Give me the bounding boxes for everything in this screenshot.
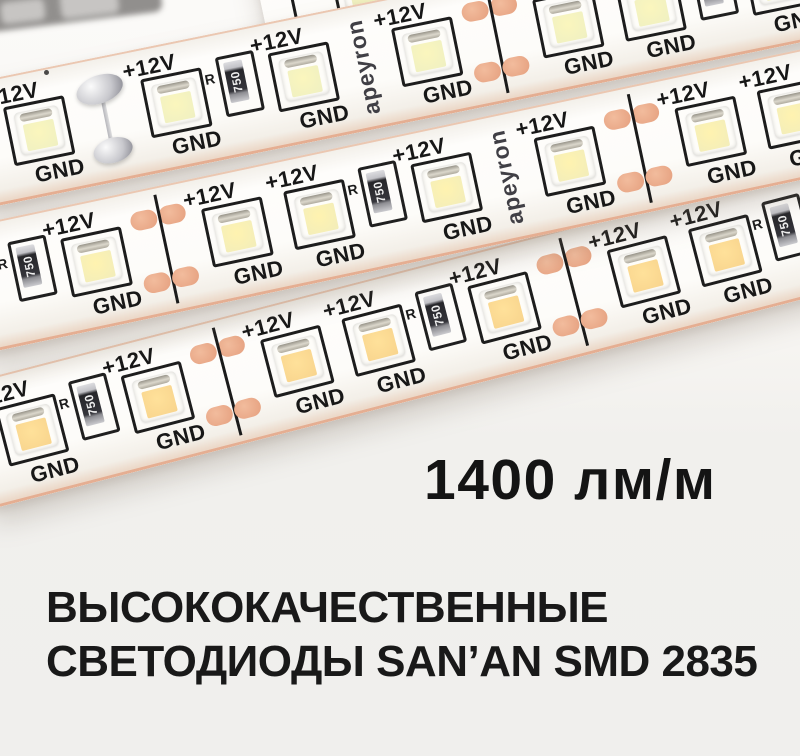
led-chip [624, 0, 677, 31]
copper-pad [616, 170, 646, 194]
solder-joint [72, 68, 127, 110]
resistor-component: 750 [223, 59, 250, 103]
led-frame [140, 67, 213, 138]
led-chip [131, 371, 185, 424]
led-chip [420, 161, 473, 212]
subheading-line-1: ВЫСОКОКАЧЕСТВЕННЫЕ [46, 581, 757, 635]
resistor-value-label: 750 [428, 303, 447, 327]
led-die [553, 149, 589, 182]
resistor-value-label: 750 [227, 69, 245, 93]
product-subheading: ВЫСОКОКАЧЕСТВЕННЫЕ СВЕТОДИОДЫ SAN’AN SMD… [46, 581, 757, 689]
led-die [694, 119, 730, 152]
led-frame [201, 196, 274, 268]
resistor-component: 750 [423, 293, 452, 337]
led-die [159, 90, 195, 123]
copper-pad [129, 208, 159, 232]
solder-joint [90, 133, 135, 168]
resistor-component: 750 [769, 203, 798, 247]
blurred-component [0, 0, 46, 25]
resistor-prefix-label: R [346, 181, 359, 199]
dust-speck [44, 70, 49, 75]
led-frame [283, 178, 356, 250]
led-chip [698, 224, 752, 277]
copper-pad [603, 107, 633, 131]
led-chip [211, 206, 264, 257]
resistor-component: 750 [76, 382, 105, 426]
subheading-line-2: СВЕТОДИОДЫ SAN’AN SMD 2835 [46, 635, 757, 689]
led-frame [410, 151, 483, 223]
led-die [487, 295, 524, 329]
resistor-frame: 750 [689, 0, 739, 21]
led-chip [150, 77, 203, 128]
led-die [430, 175, 466, 208]
led-die [634, 0, 670, 27]
led-chip [477, 281, 531, 334]
led-frame [391, 16, 464, 87]
led-chip [542, 0, 595, 48]
led-die [141, 384, 178, 418]
led-die [410, 39, 446, 72]
led-chip [543, 135, 596, 186]
led-die [761, 0, 797, 1]
led-die [287, 65, 323, 98]
led-chip [351, 313, 405, 366]
copper-pad [551, 313, 582, 338]
lumen-headline: 1400 лм/м [424, 447, 717, 513]
led-die [361, 327, 398, 361]
gnd-label: GND [564, 186, 618, 218]
led-die [79, 249, 115, 282]
copper-pad [535, 251, 566, 276]
gnd-label: GND [441, 212, 495, 244]
led-chip [293, 188, 346, 239]
led-die [627, 259, 664, 293]
product-image: +12VGNDR750+12VGND+12VGND+12VGND+12VGND+… [0, 0, 800, 756]
resistor-prefix-label: R [203, 70, 216, 88]
led-chip [752, 0, 800, 5]
led-frame [756, 78, 800, 150]
led-chip [13, 105, 66, 156]
gnd-label: GND [232, 257, 286, 289]
led-die [776, 101, 800, 134]
resistor-prefix-label: R [0, 255, 9, 273]
led-frame [60, 226, 133, 298]
gnd-label: GND [91, 287, 145, 319]
resistor-value-label: 750 [81, 392, 100, 416]
copper-pad [204, 403, 235, 428]
led-frame [3, 95, 76, 166]
blurred-strip-fragment [0, 0, 163, 33]
blurred-component [59, 0, 120, 20]
led-die [15, 417, 52, 451]
copper-pad [188, 341, 219, 366]
copper-pad [460, 0, 490, 23]
copper-pad [142, 271, 172, 295]
led-chip [5, 403, 59, 456]
led-chip [684, 105, 737, 156]
resistor-value-label: 750 [20, 254, 38, 278]
led-die [280, 348, 317, 382]
led-chip [70, 236, 123, 287]
led-die [220, 220, 256, 253]
resistor-value-label: 750 [774, 213, 793, 237]
led-frame [674, 95, 747, 167]
resistor-frame: 750 [761, 193, 800, 262]
led-chip [617, 245, 671, 298]
led-die [551, 11, 587, 44]
resistor-component: 750 [366, 170, 393, 214]
led-chip [401, 26, 454, 77]
led-frame [267, 41, 340, 112]
led-chip [766, 88, 800, 139]
gnd-label: GND [705, 156, 759, 188]
led-chip [277, 51, 330, 102]
copper-pad [473, 60, 503, 84]
led-die [302, 202, 338, 235]
led-chip [270, 334, 324, 387]
led-die [708, 238, 745, 272]
resistor-value-label: 750 [370, 180, 388, 204]
resistor-component: 750 [15, 244, 42, 288]
led-die [22, 118, 58, 151]
led-frame [533, 125, 606, 197]
gnd-label: GND [314, 239, 368, 271]
resistor-component: 750 [697, 0, 724, 7]
